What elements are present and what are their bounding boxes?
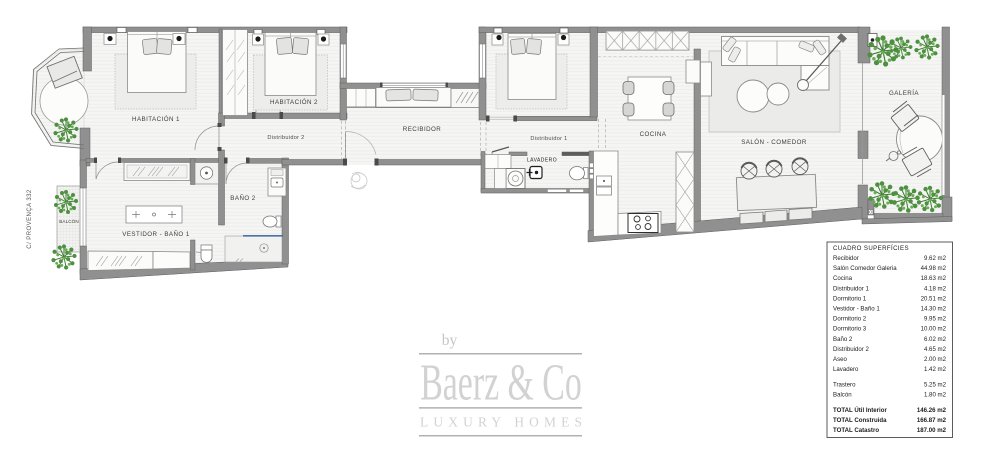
svg-text:SALÓN - COMEDOR: SALÓN - COMEDOR	[741, 139, 807, 146]
svg-text:VESTIDOR - BAÑO 1: VESTIDOR - BAÑO 1	[122, 231, 190, 238]
svg-text:C/ PROVENÇA 332: C/ PROVENÇA 332	[27, 189, 33, 249]
svg-text:Lavadero: Lavadero	[833, 366, 859, 373]
svg-text:18.63 m2: 18.63 m2	[921, 275, 947, 282]
svg-text:20.51 m2: 20.51 m2	[921, 295, 947, 302]
svg-text:Recibidor: Recibidor	[833, 255, 859, 262]
svg-text:TOTAL Construida: TOTAL Construida	[833, 417, 887, 424]
svg-text:HABITACIÓN 1: HABITACIÓN 1	[132, 116, 180, 123]
svg-text:9.62 m2: 9.62 m2	[924, 255, 947, 262]
svg-text:COCINA: COCINA	[640, 131, 667, 138]
svg-text:Cocina: Cocina	[833, 275, 853, 282]
svg-text:146.26 m2: 146.26 m2	[917, 407, 947, 414]
svg-text:Balcón: Balcón	[833, 392, 852, 399]
svg-text:1.42 m2: 1.42 m2	[924, 366, 947, 373]
svg-text:Aseo: Aseo	[833, 356, 848, 363]
svg-text:Trastero: Trastero	[833, 382, 856, 389]
svg-text:Distribuidor 2: Distribuidor 2	[267, 135, 304, 141]
svg-text:BALCÓN: BALCÓN	[59, 218, 79, 224]
svg-text:1.80 m2: 1.80 m2	[924, 392, 947, 399]
svg-text:166.87 m2: 166.87 m2	[917, 417, 947, 424]
svg-text:4.65 m2: 4.65 m2	[924, 346, 947, 353]
svg-text:5.25 m2: 5.25 m2	[924, 382, 947, 389]
svg-text:2.00 m2: 2.00 m2	[924, 356, 947, 363]
svg-text:44.98 m2: 44.98 m2	[921, 265, 947, 272]
svg-text:10.00 m2: 10.00 m2	[921, 326, 947, 333]
svg-text:BAÑO 2: BAÑO 2	[230, 195, 256, 202]
svg-text:6.02 m2: 6.02 m2	[924, 336, 947, 343]
svg-text:TOTAL Útil Interior: TOTAL Útil Interior	[833, 407, 887, 414]
svg-text:Dormitorio 1: Dormitorio 1	[833, 295, 867, 302]
svg-text:HABITACIÓN 2: HABITACIÓN 2	[270, 99, 318, 106]
svg-text:Distribuidor 2: Distribuidor 2	[833, 346, 870, 353]
svg-text:14.30 m2: 14.30 m2	[921, 306, 947, 313]
svg-text:by: by	[442, 332, 458, 349]
svg-text:4.18 m2: 4.18 m2	[924, 285, 947, 292]
svg-text:Salón Comedor Galeria: Salón Comedor Galeria	[833, 265, 897, 272]
svg-text:Dormitorio 2: Dormitorio 2	[833, 316, 867, 323]
svg-text:187.00 m2: 187.00 m2	[917, 427, 947, 434]
svg-text:Distribuidor 1: Distribuidor 1	[530, 136, 567, 142]
svg-text:GALERÍA: GALERÍA	[889, 90, 919, 97]
svg-text:Distribuidor 1: Distribuidor 1	[833, 285, 870, 292]
svg-text:9.95 m2: 9.95 m2	[924, 316, 947, 323]
svg-text:CUADRO SUPERFÍCIES: CUADRO SUPERFÍCIES	[833, 245, 909, 252]
svg-text:Vestidor - Baño 1: Vestidor - Baño 1	[833, 306, 880, 313]
svg-text:TOTAL Catastro: TOTAL Catastro	[833, 427, 879, 434]
svg-text:RECIBIDOR: RECIBIDOR	[403, 126, 442, 133]
svg-text:LAVADERO: LAVADERO	[527, 158, 557, 164]
svg-text:Baerz & Co: Baerz & Co	[420, 355, 582, 412]
svg-text:Dormitorio 3: Dormitorio 3	[833, 326, 867, 333]
svg-text:Baño 2: Baño 2	[833, 336, 853, 343]
